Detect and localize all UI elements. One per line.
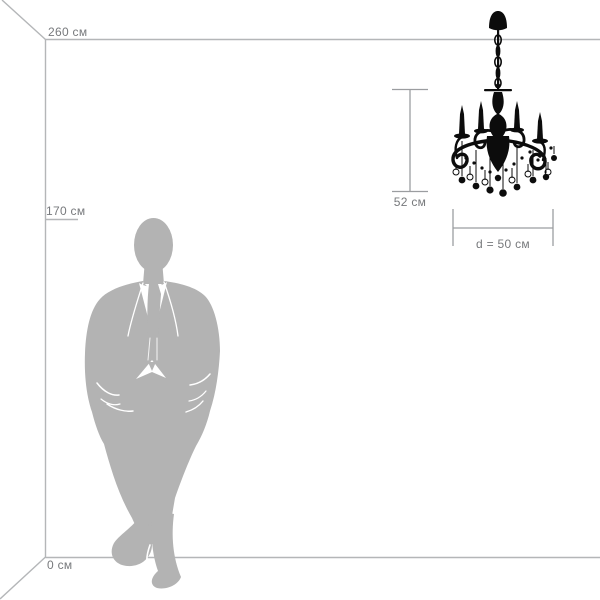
ceiling-height-label: 260 см: [48, 26, 87, 39]
stem-top-dish: [484, 89, 512, 91]
person-right-shoe: [152, 510, 181, 588]
stem-top-ball: [496, 84, 501, 89]
person-neck: [143, 260, 164, 284]
corner-diagonal-bottom: [0, 557, 46, 599]
person-height-label: 170 см: [46, 205, 85, 218]
product-diameter-label: d = 50 см: [453, 238, 553, 251]
diagram-graphics: [0, 0, 600, 600]
candle-right-outer: [537, 112, 543, 139]
candle-left-inner: [478, 101, 484, 129]
center-finial-drop: [495, 175, 501, 181]
height-dimension-marker: [392, 90, 428, 192]
candle-left-outer: [459, 105, 465, 134]
person-left-shoe: [112, 516, 152, 566]
ceiling-canopy: [489, 11, 507, 30]
candle-right-inner: [514, 101, 520, 128]
corner-diagonal-top: [2, 0, 46, 40]
floor-level-label: 0 см: [47, 559, 72, 572]
product-size-diagram: 260 см 170 см 0 см 52 см d = 50 см: [0, 0, 600, 600]
product-height-label: 52 см: [386, 196, 434, 209]
hanging-rod: [497, 28, 499, 90]
person-silhouette: [85, 218, 220, 588]
